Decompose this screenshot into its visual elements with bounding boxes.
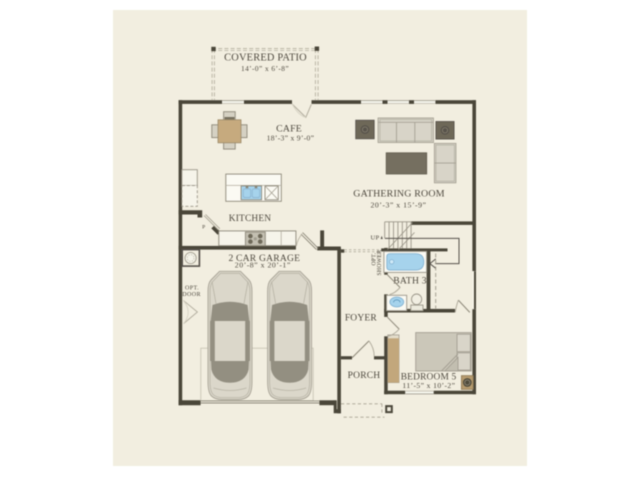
svg-text:PORCH: PORCH: [348, 371, 381, 381]
svg-text:DOOR: DOOR: [182, 292, 201, 298]
svg-text:SHOWER: SHOWER: [377, 250, 383, 276]
svg-text:UP: UP: [371, 235, 380, 242]
svg-text:GATHERING ROOM: GATHERING ROOM: [353, 189, 444, 200]
svg-text:FOYER: FOYER: [345, 314, 378, 324]
svg-text:20’-3” x 15’-9”: 20’-3” x 15’-9”: [371, 200, 427, 209]
svg-text:OPT.: OPT.: [185, 285, 199, 291]
svg-text:KITCHEN: KITCHEN: [229, 214, 272, 224]
svg-text:P: P: [202, 225, 205, 231]
svg-text:18’-3” x 9’-0”: 18’-3” x 9’-0”: [267, 133, 315, 142]
svg-text:COVERED PATIO: COVERED PATIO: [224, 53, 307, 64]
svg-text:14’-0” x 6’-8”: 14’-0” x 6’-8”: [241, 64, 289, 73]
svg-text:BATH 3: BATH 3: [393, 275, 426, 286]
svg-text:11’-5” x 10’-2”: 11’-5” x 10’-2”: [402, 381, 455, 390]
svg-text:20’-8” x 20’-1”: 20’-8” x 20’-1”: [235, 260, 291, 269]
